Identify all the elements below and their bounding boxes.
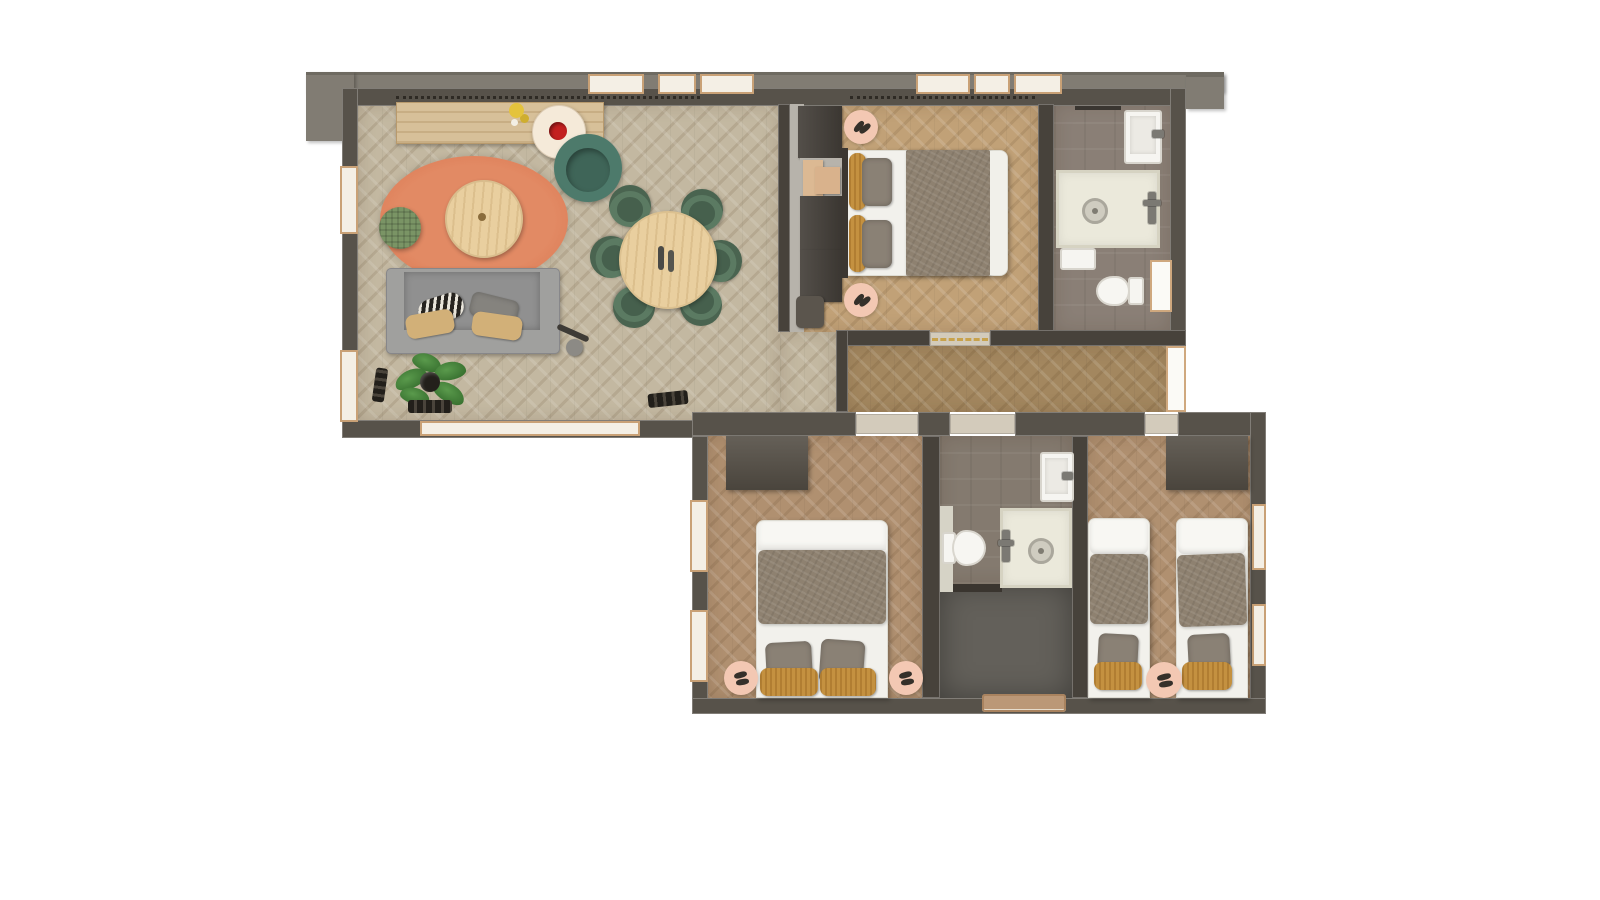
wall-bath2-right <box>1072 436 1088 698</box>
bathroom2-sink-faucet <box>1062 472 1073 480</box>
ensuite-door <box>1150 260 1172 312</box>
living-bottom-window <box>420 421 640 436</box>
left-window-1 <box>340 166 358 234</box>
bedroom2-door-threshold <box>856 414 918 434</box>
box-beige <box>815 167 840 194</box>
bedroom2-pink-rug-left <box>724 661 758 695</box>
master-pink-rug-top <box>844 110 878 144</box>
ensuite-sink-faucet <box>1152 130 1164 138</box>
bathroom2-shower-valve <box>1002 530 1010 562</box>
towel-rail <box>1075 106 1121 110</box>
wall-bath2-left <box>922 436 940 698</box>
top-window-3 <box>700 74 754 94</box>
ensuite-corner-basin <box>1060 248 1096 270</box>
bedroom2-sheet-fold <box>758 522 886 550</box>
ensuite-toilet-tank <box>1128 277 1144 305</box>
ensuite-toilet-bowl <box>1096 276 1130 306</box>
bedroom2-pink-rug-right <box>889 661 923 695</box>
plant-pot <box>420 372 440 392</box>
wall-master-hallway-b <box>990 330 1186 346</box>
duck-decor <box>509 103 524 118</box>
living-window-band <box>396 96 700 99</box>
wall-bottom <box>692 698 1266 714</box>
hallway-terrace-door <box>1166 346 1186 412</box>
family-bathroom-door-threshold <box>950 414 1015 434</box>
shoes-row-plant <box>408 400 452 413</box>
left-window-2 <box>340 350 358 422</box>
ensuite-shower-valve <box>1148 192 1156 224</box>
twin-bed-right-pillow <box>1178 520 1246 554</box>
wall-lower-top-a <box>692 412 856 436</box>
wall-living-master-divider <box>778 104 790 332</box>
twin-bed-left-pillow <box>1090 520 1148 554</box>
master-sheet-edge <box>990 151 1007 275</box>
twin-window-1 <box>1252 504 1266 570</box>
master-cabinet-2 <box>800 196 842 250</box>
twin-bed-right-gold-pillow <box>1182 662 1232 690</box>
twin-pink-rug <box>1146 662 1182 698</box>
wall-hallway-stub <box>836 330 848 412</box>
top-window-4 <box>916 74 970 94</box>
living-room-floor-extension <box>780 332 836 422</box>
master-gray-pillow-1 <box>862 158 892 206</box>
candlestick-1 <box>658 246 664 270</box>
top-window-6 <box>1014 74 1062 94</box>
master-door-dashes <box>932 338 988 341</box>
wall-master-bath-divider <box>1038 104 1054 332</box>
twin-bedroom-door-threshold <box>1145 414 1178 434</box>
master-bench <box>796 296 824 328</box>
master-gray-pillow-2 <box>862 220 892 268</box>
ensuite-shower-drain <box>1082 198 1108 224</box>
top-window-2 <box>658 74 696 94</box>
bathroom2-shower-knobs <box>998 540 1014 546</box>
bedroom2-wardrobe <box>726 436 808 490</box>
bathroom2-shower-drain <box>1028 538 1054 564</box>
master-cabinet-3 <box>800 250 842 302</box>
twin-window-2 <box>1252 604 1266 666</box>
coffee-table-decor <box>478 213 486 221</box>
twin-wardrobe <box>1166 436 1248 490</box>
roof-overhang-right <box>1186 74 1224 109</box>
wall-lower-top-c <box>1015 412 1145 436</box>
ensuite-shower <box>1056 170 1160 248</box>
bedroom2-window-1 <box>690 500 708 572</box>
wall-lower-top-b <box>918 412 950 436</box>
floor-lamp-shade <box>566 339 583 356</box>
wall-master-hallway-a <box>846 330 930 346</box>
green-pouf <box>379 207 421 249</box>
entrance-door <box>982 694 1066 712</box>
bedroom2-gold-pillow-1 <box>760 668 818 696</box>
master-duvet <box>906 150 990 276</box>
entry-vestibule-floor <box>940 584 1072 698</box>
twin-bed-right-duvet <box>1177 553 1247 627</box>
top-window-5 <box>974 74 1010 94</box>
master-cabinet-1 <box>798 106 842 158</box>
twin-bed-left-duvet <box>1090 554 1148 624</box>
ensuite-shower-knobs <box>1143 200 1161 206</box>
top-window-1 <box>588 74 644 94</box>
bedroom2-duvet <box>758 550 886 624</box>
bedroom2-gold-pillow-2 <box>820 668 876 696</box>
twin-bed-left-gold-pillow <box>1094 662 1142 690</box>
bedroom2-window-2 <box>690 610 708 682</box>
floor-plan <box>0 0 1600 900</box>
hallway-floor <box>846 346 1170 412</box>
master-headboard <box>842 148 848 278</box>
red-bowl <box>549 122 567 140</box>
master-window-band <box>850 96 1035 99</box>
candlestick-2 <box>668 250 674 272</box>
teal-armchair-seat <box>566 148 610 192</box>
master-pink-rug-bottom <box>844 283 878 317</box>
